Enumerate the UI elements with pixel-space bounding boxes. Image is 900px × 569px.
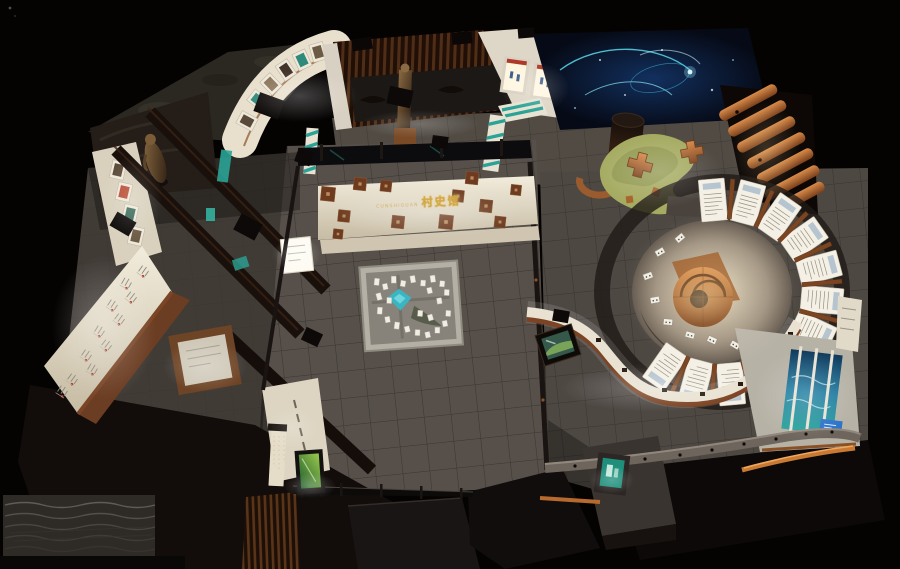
sign-chinese: 村史馆: [421, 192, 461, 210]
museum-render: CUNSHIGUAN 村史馆: [0, 0, 900, 569]
speck: [9, 7, 12, 10]
sign-pinyin: CUNSHIGUAN: [376, 203, 419, 210]
speck: [14, 15, 16, 17]
sand-table-model: [359, 261, 463, 352]
timber-fence: [242, 492, 300, 569]
white-wedge-panel: [836, 296, 862, 352]
render-scene: [0, 0, 900, 569]
